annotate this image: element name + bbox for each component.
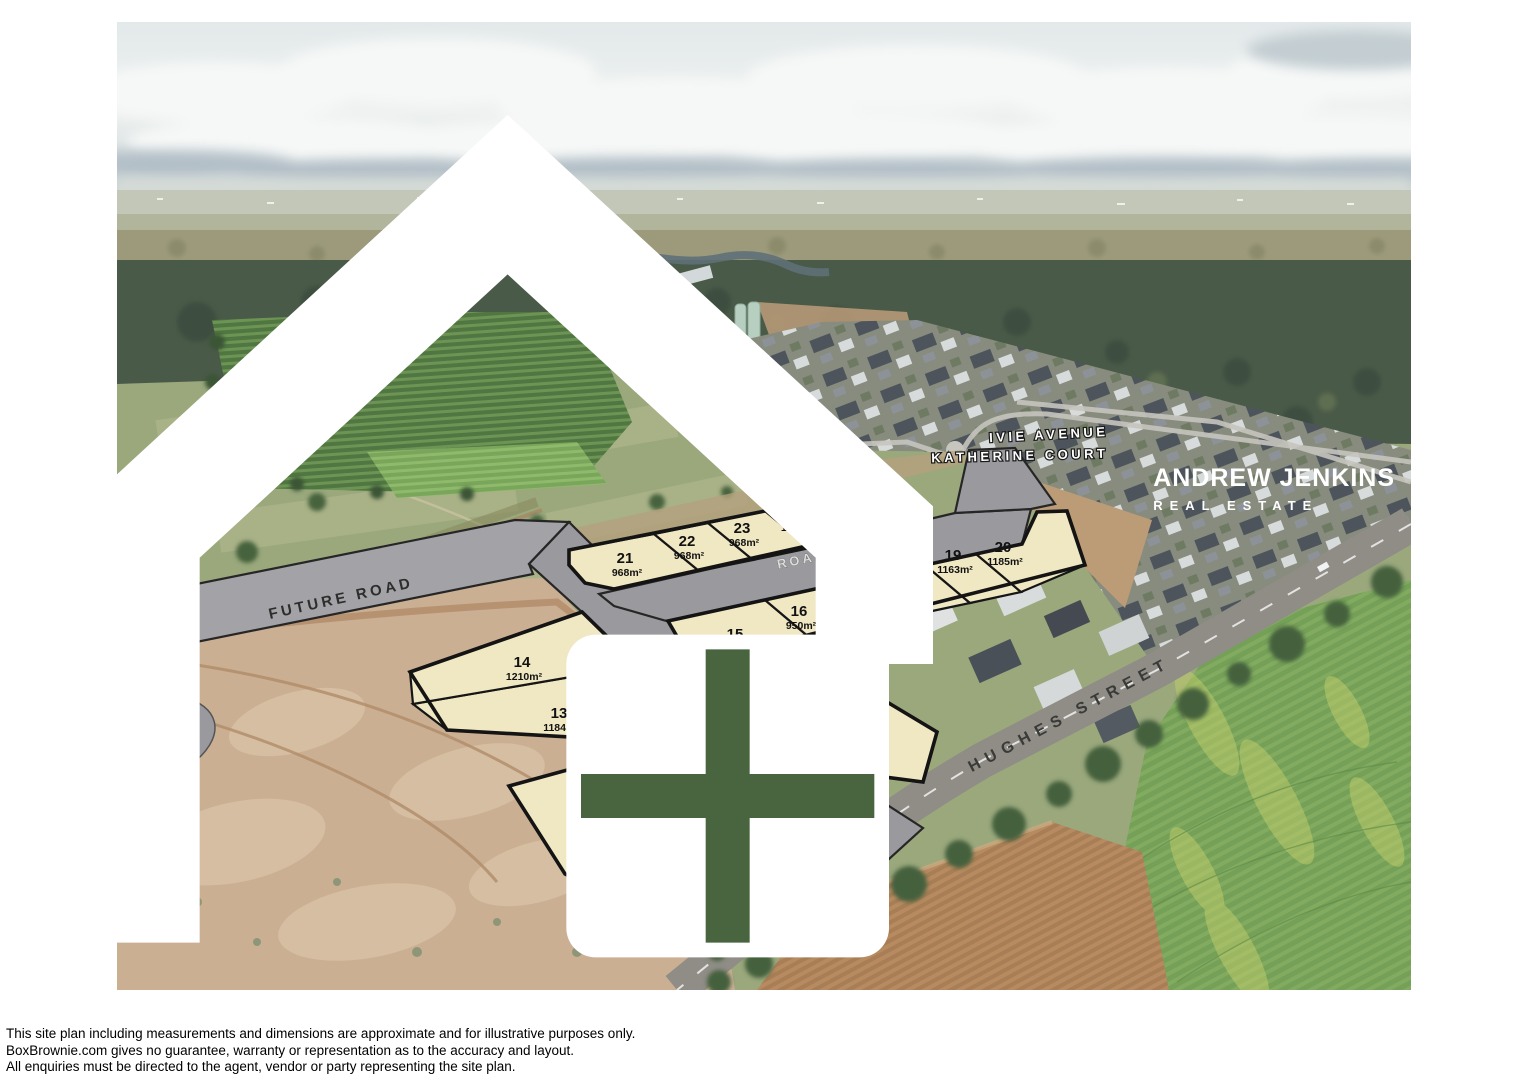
aerial-photo: 10950m²11916m²12915m²131184m²141210m²159… (117, 22, 1411, 990)
disclaimer-line-2: BoxBrownie.com gives no guarantee, warra… (6, 1043, 635, 1060)
disclaimer: This site plan including measurements an… (6, 1026, 635, 1076)
disclaimer-line-3: All enquiries must be directed to the ag… (6, 1059, 635, 1076)
house-icon (117, 22, 1140, 972)
logo-text: ANDREW JENKINS REAL ESTATE (1153, 464, 1395, 513)
logo-brand: ANDREW JENKINS (1153, 464, 1395, 493)
brand-logo: ANDREW JENKINS REAL ESTATE (117, 22, 1395, 972)
logo-tagline: REAL ESTATE (1153, 498, 1395, 513)
site-plan-page: 10950m²11916m²12915m²131184m²141210m²159… (0, 0, 1528, 1080)
disclaimer-line-1: This site plan including measurements an… (6, 1026, 635, 1043)
